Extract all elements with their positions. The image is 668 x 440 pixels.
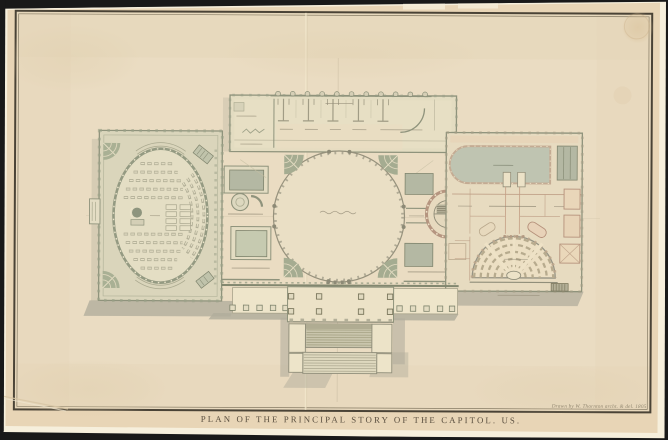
svg-text:PLAN OF THE PRINCIPAL STORY OF: PLAN OF THE PRINCIPAL STORY OF THE CAPIT… xyxy=(201,414,522,426)
svg-text:Drawn by W. Thornton archt. &: Drawn by W. Thornton archt. & del. 1805 xyxy=(551,404,647,410)
